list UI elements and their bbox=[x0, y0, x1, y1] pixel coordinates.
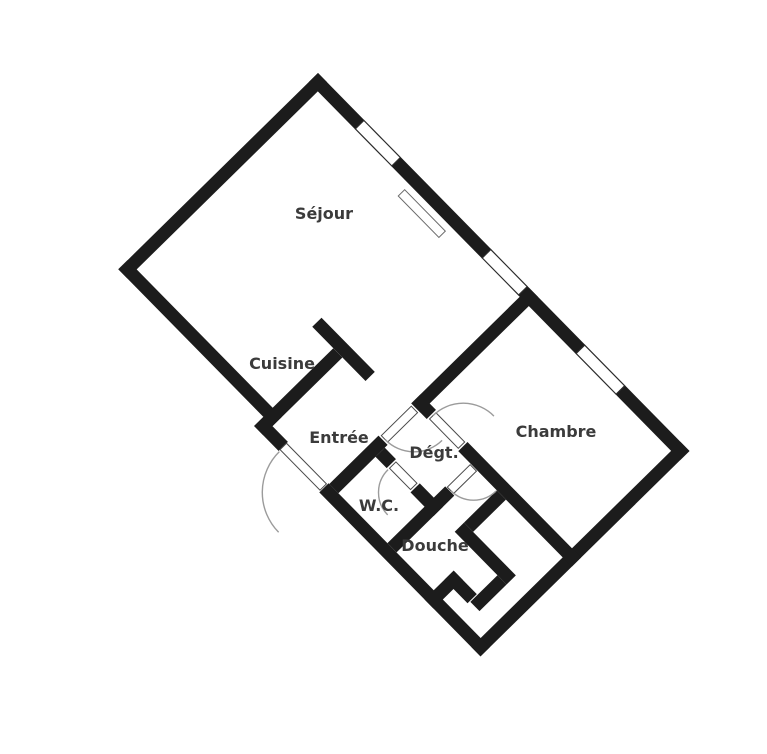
room-label-douche: Douche bbox=[401, 536, 469, 555]
wall-bottom-cuisine bbox=[118, 260, 281, 426]
room-label-entree: Entrée bbox=[309, 428, 369, 447]
wall-left bbox=[118, 73, 327, 279]
windows bbox=[355, 120, 624, 394]
chambre-door-arc bbox=[433, 385, 494, 446]
window-icon-sejour-1 bbox=[355, 120, 400, 165]
wc-door-leaf bbox=[390, 462, 417, 490]
wall-bottom-right bbox=[319, 483, 489, 656]
room-label-sejour: Séjour bbox=[295, 204, 353, 223]
room-label-chambre: Chambre bbox=[516, 422, 597, 441]
floor-plan-page: Séjour Cuisine Entrée Dégt. Chambre W.C.… bbox=[0, 0, 767, 754]
window-icon-chambre bbox=[576, 345, 625, 394]
degt-door-leaf bbox=[381, 406, 417, 442]
floor-plan-canvas: Séjour Cuisine Entrée Dégt. Chambre W.C.… bbox=[0, 0, 767, 754]
wall-sejour-chambre bbox=[411, 288, 538, 413]
wall-closet-stub-1 bbox=[464, 490, 506, 532]
room-label-wc: W.C. bbox=[359, 496, 399, 515]
room-label-cuisine: Cuisine bbox=[249, 354, 315, 373]
douche-door-leaf bbox=[447, 465, 476, 494]
wall-top-segment-2 bbox=[391, 157, 491, 258]
window-icon-sejour-2 bbox=[482, 250, 527, 295]
plan-rotated-group bbox=[68, 73, 689, 696]
room-label-degt: Dégt. bbox=[409, 443, 458, 462]
wall-right bbox=[471, 442, 689, 657]
entrance-door-leaf bbox=[280, 443, 326, 490]
interior-walls bbox=[233, 199, 689, 656]
